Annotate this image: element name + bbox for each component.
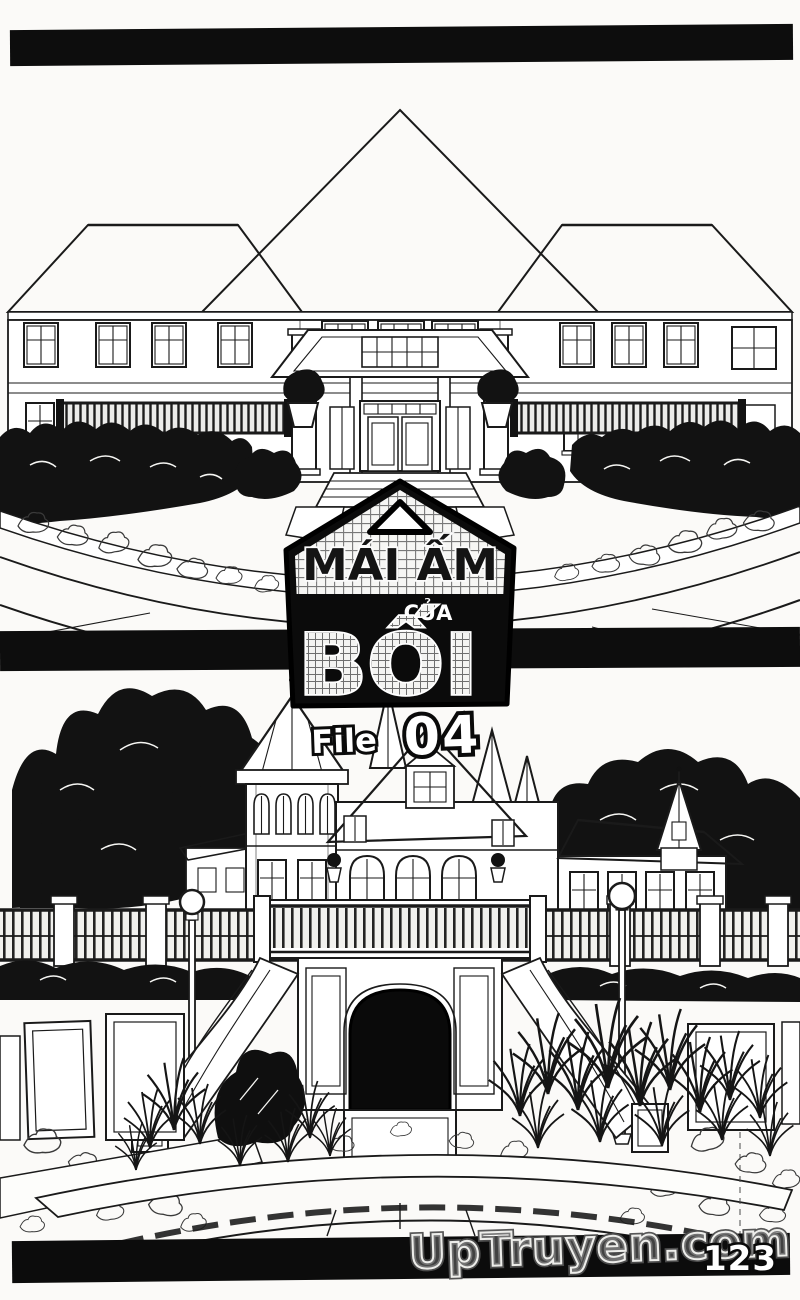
file-number: 04 [403, 705, 481, 768]
page-number: 123 [690, 1230, 790, 1286]
mansion-roof-group [8, 110, 792, 320]
logo-title-bottom: BỐI [298, 605, 478, 710]
top-black-bar [10, 24, 793, 66]
logo-title-top: MÁI ẤM [302, 532, 498, 591]
chapter-logo-badge: MÁI ẤM CỦA BỐI [280, 478, 520, 710]
page-number-text: 123 [703, 1239, 777, 1279]
manga-page-sheet: MÁI ẤM CỦA BỐI File 04 UpTruyen.com UpTr… [0, 0, 800, 1300]
file-number-group: File 04 [292, 698, 512, 778]
watermark: UpTruyen.com UpTruyen.com [0, 1196, 800, 1300]
file-label: File [311, 721, 378, 761]
entrance-arch [350, 990, 450, 1110]
